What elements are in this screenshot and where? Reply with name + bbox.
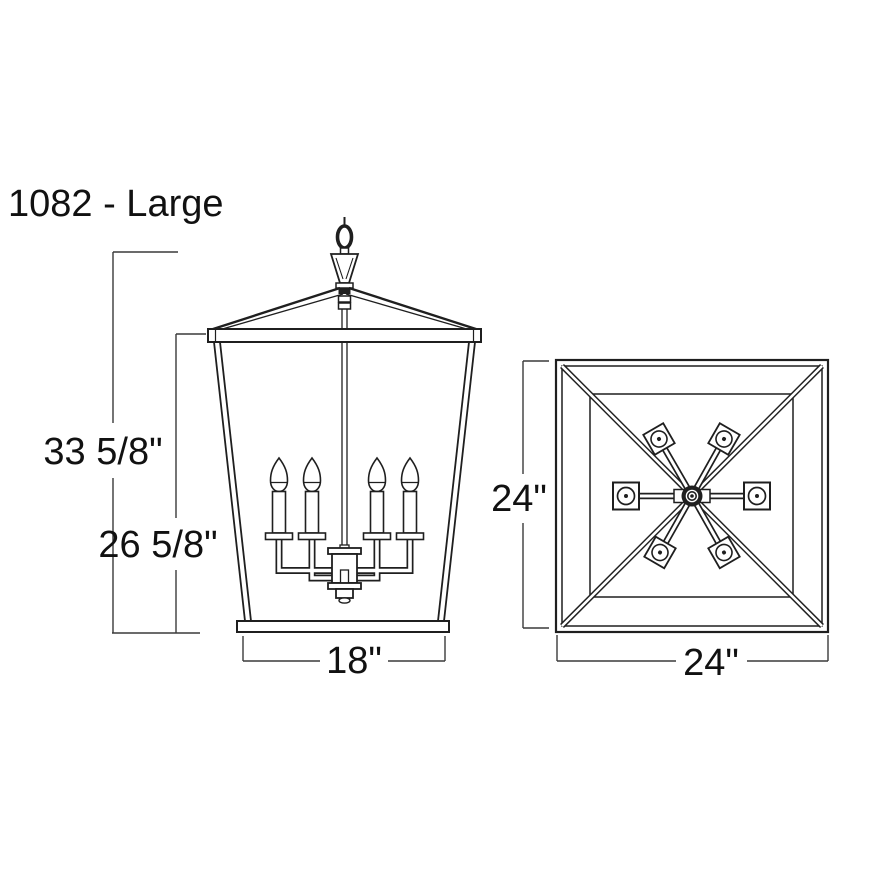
- technical-drawing: 1082 - Large: [0, 0, 884, 884]
- candles: [266, 458, 424, 540]
- bottom-width-label: 18": [326, 640, 382, 682]
- hanging-loop-finial: [331, 217, 358, 294]
- depth-label: 24": [491, 478, 547, 520]
- cage-bottom-rim: [237, 621, 449, 632]
- dim-width: 24": [557, 635, 828, 684]
- dim-overall-height: 33 5/8": [43, 252, 178, 633]
- front-elevation-view: [208, 217, 481, 632]
- dim-depth: 24": [491, 361, 549, 628]
- width-label: 24": [683, 642, 739, 684]
- dim-cage-height: 26 5/8": [98, 334, 217, 633]
- cage-roof: [210, 288, 479, 332]
- overall-height-label: 33 5/8": [43, 431, 162, 473]
- top-center-hub: [674, 486, 710, 507]
- dim-bottom-width: 18": [243, 636, 445, 682]
- cage-height-label: 26 5/8": [98, 524, 217, 566]
- top-plan-view: [556, 360, 828, 632]
- drawing-page: 1082 - Large: [0, 0, 884, 884]
- product-title: 1082 - Large: [8, 183, 224, 225]
- socket: [613, 483, 639, 510]
- socket: [744, 483, 770, 510]
- candle: [266, 458, 293, 540]
- candle: [364, 458, 391, 540]
- candle: [397, 458, 424, 540]
- candle: [299, 458, 326, 540]
- center-hub: [328, 548, 361, 603]
